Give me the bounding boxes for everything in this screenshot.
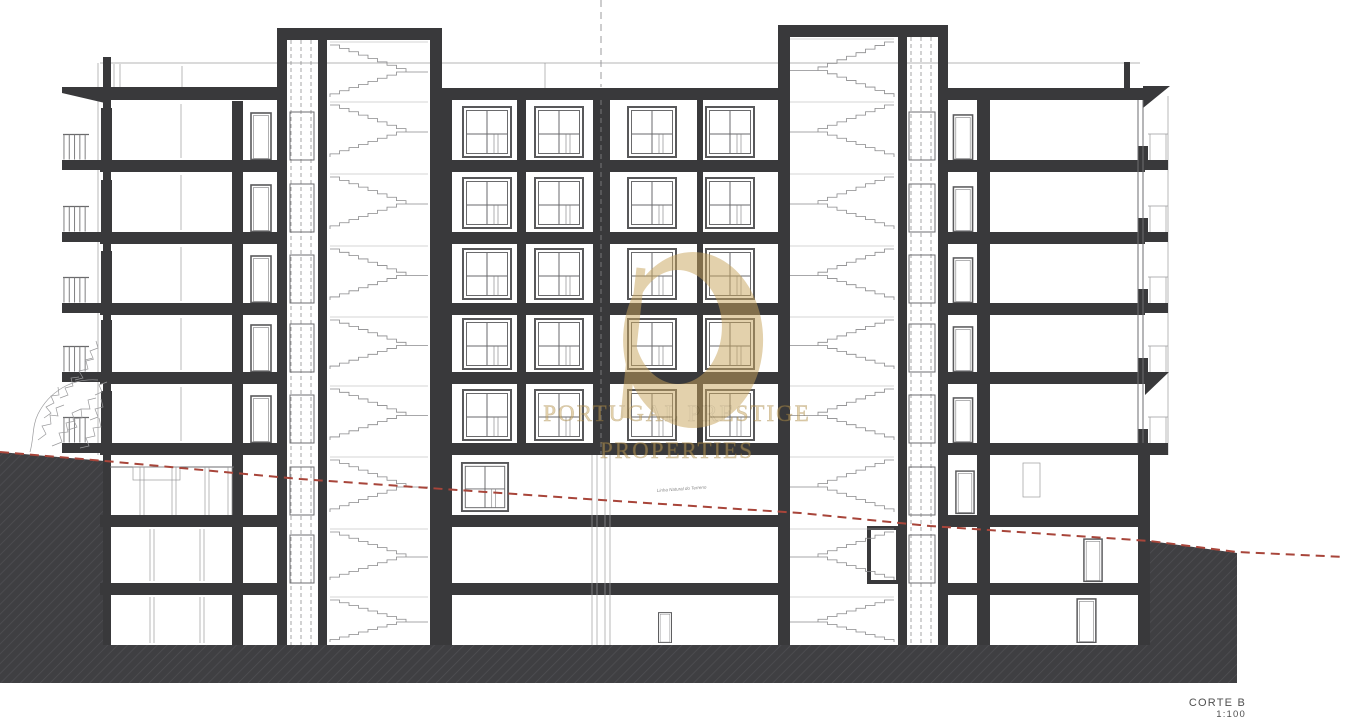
title-block: CORTE B 1:100 bbox=[1189, 697, 1246, 720]
right-core-wall-a bbox=[778, 37, 790, 645]
window bbox=[706, 178, 754, 228]
vegetation-scribble bbox=[30, 341, 107, 452]
door-frame bbox=[251, 256, 271, 303]
door-frame bbox=[1084, 539, 1102, 581]
left-core-wall-c bbox=[430, 28, 442, 645]
left-core-wall-b bbox=[318, 40, 327, 645]
door-frame bbox=[251, 396, 271, 443]
left-core-wall-a bbox=[277, 40, 287, 645]
balcony-railing bbox=[63, 417, 89, 442]
right-core-top-slab bbox=[778, 25, 948, 37]
window bbox=[463, 319, 511, 369]
balcony-railing bbox=[63, 206, 89, 231]
window bbox=[463, 178, 511, 228]
mid-facade-left bbox=[442, 88, 452, 645]
door-frame bbox=[953, 398, 972, 443]
door-frame bbox=[953, 258, 972, 303]
window bbox=[462, 463, 508, 511]
window bbox=[628, 178, 676, 228]
elevator-doors bbox=[290, 112, 935, 583]
right-core-wall-c bbox=[938, 37, 948, 645]
door-frame bbox=[659, 613, 672, 643]
terrain-line-annotation: Linha Natural do Terreno bbox=[657, 485, 707, 493]
right-balconies bbox=[1145, 134, 1169, 455]
terrain-base-strip bbox=[62, 645, 1237, 683]
mullion-a bbox=[517, 100, 526, 443]
window bbox=[535, 107, 583, 157]
door-frame bbox=[251, 113, 271, 160]
watermark-line2: PROPERTIES bbox=[600, 438, 754, 463]
glass-railings bbox=[1148, 134, 1168, 443]
elevator-shafts bbox=[290, 37, 935, 645]
door-frame bbox=[953, 327, 972, 372]
door-frame bbox=[956, 471, 974, 513]
building-section bbox=[62, 25, 1170, 645]
balcony-railing bbox=[63, 277, 89, 302]
window bbox=[628, 107, 676, 157]
left-balconies bbox=[62, 134, 103, 453]
roof-slabs bbox=[62, 25, 1170, 108]
window bbox=[535, 319, 583, 369]
door-frame bbox=[1077, 599, 1096, 643]
watermark-line1: PORTUGAL PRESTIGE bbox=[543, 401, 811, 426]
stairs-left-core bbox=[330, 42, 428, 642]
elevator-guide-lines bbox=[291, 37, 931, 645]
window bbox=[463, 249, 511, 299]
balcony-railing bbox=[63, 134, 89, 159]
section-scale: 1:100 bbox=[1216, 709, 1246, 720]
window bbox=[535, 178, 583, 228]
window bbox=[463, 107, 511, 157]
door-frame bbox=[953, 187, 972, 232]
right-basement-wall bbox=[1138, 443, 1150, 645]
window bbox=[706, 107, 754, 157]
center-column bbox=[593, 88, 610, 455]
right-parapet-post bbox=[1124, 62, 1130, 88]
door-frame bbox=[953, 115, 972, 160]
balcony-railing bbox=[63, 346, 89, 371]
corte-b-section-drawing: Linha Natural do Terreno PORTUGAL PRESTI… bbox=[0, 0, 1345, 720]
window bbox=[463, 390, 511, 440]
left-core-top-slab bbox=[277, 28, 442, 40]
section-title: CORTE B bbox=[1189, 697, 1246, 709]
door-frame bbox=[251, 325, 271, 372]
door-frame bbox=[251, 185, 271, 232]
terrain-right-mass bbox=[1150, 541, 1237, 683]
left-interior-wall bbox=[232, 101, 243, 645]
right-interior-wall bbox=[977, 100, 990, 645]
terrain-ground bbox=[0, 452, 1237, 683]
window bbox=[535, 249, 583, 299]
